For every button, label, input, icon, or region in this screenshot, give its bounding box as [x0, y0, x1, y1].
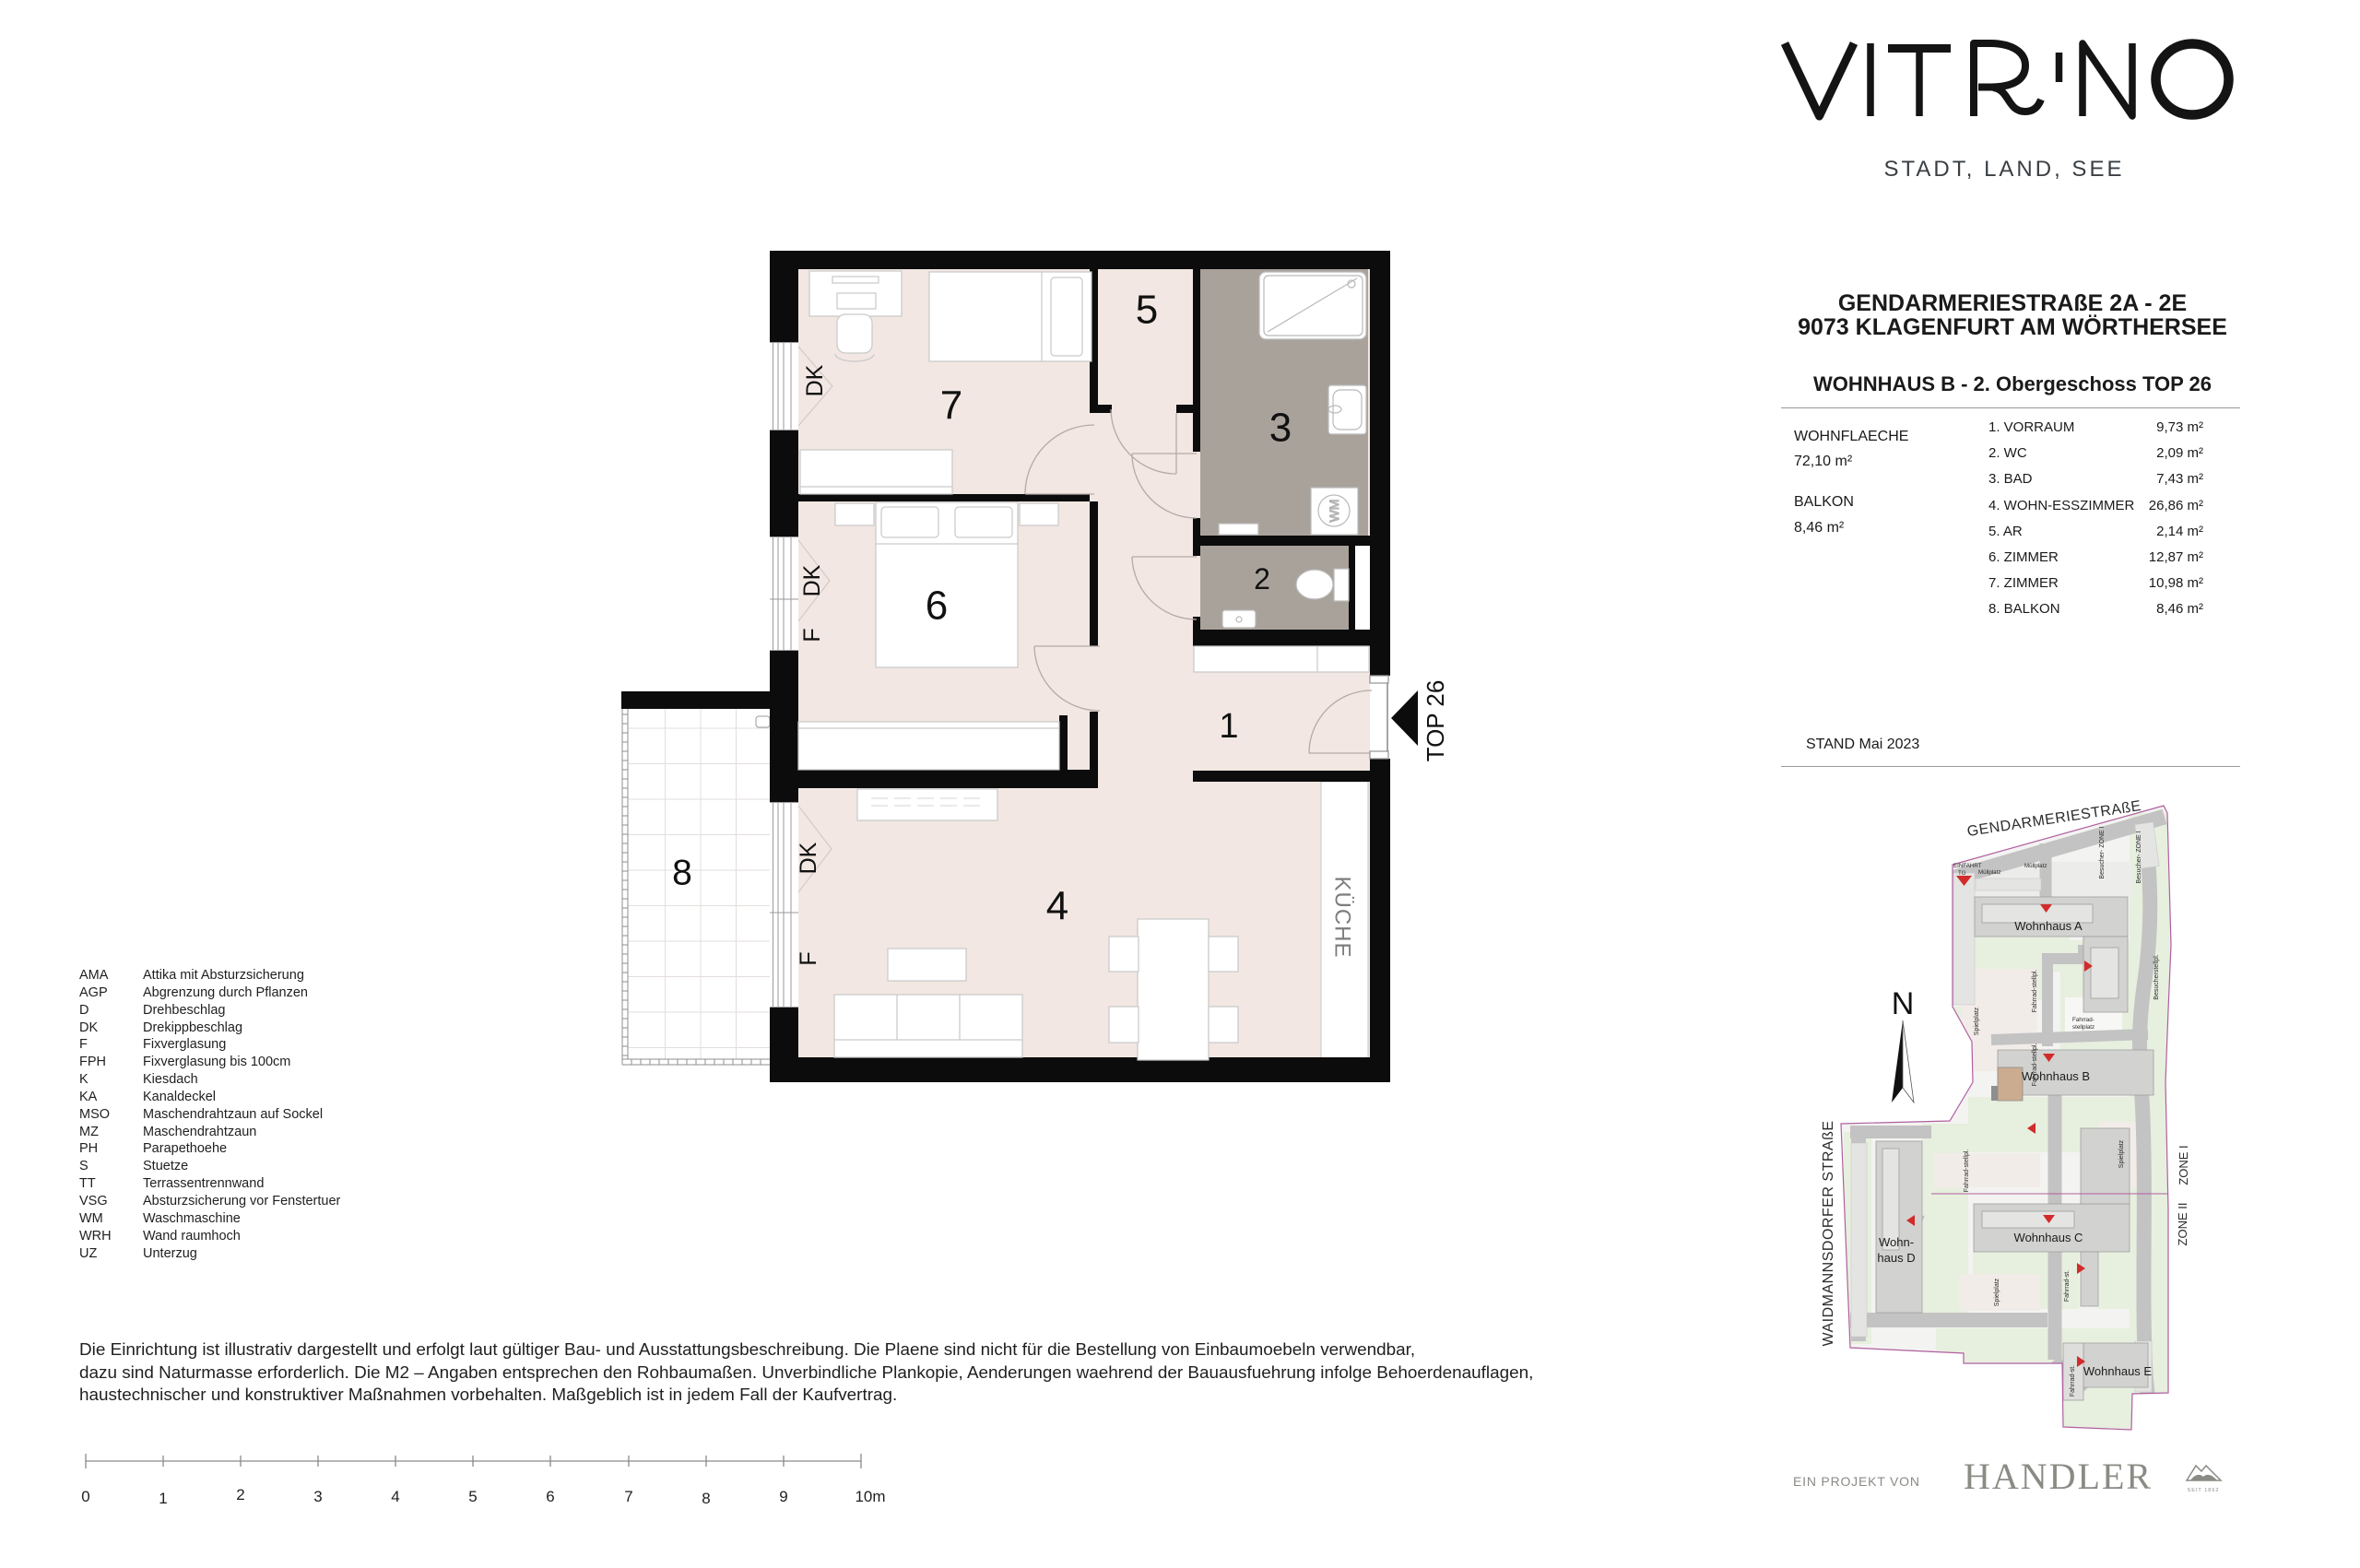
- svg-text:Fahrrad-stellpl.: Fahrrad-stellpl.: [1964, 1149, 1970, 1193]
- svg-text:DK: DK: [802, 364, 828, 396]
- svg-text:5: 5: [468, 1488, 477, 1505]
- svg-text:6: 6: [546, 1488, 554, 1505]
- svg-text:Fahrrad-st.: Fahrrad-st.: [2070, 1365, 2076, 1397]
- svg-text:8: 8: [702, 1490, 710, 1507]
- svg-text:Wohnhaus C: Wohnhaus C: [2014, 1231, 2083, 1244]
- svg-text:4: 4: [391, 1488, 399, 1505]
- svg-text:WM: WM: [1327, 500, 1341, 523]
- svg-text:Spielplatz: Spielplatz: [1974, 1007, 1980, 1035]
- svg-text:Wohnhaus E: Wohnhaus E: [2083, 1364, 2153, 1378]
- svg-text:7: 7: [624, 1488, 632, 1505]
- svg-text:N: N: [1892, 986, 1915, 1021]
- svg-text:F: F: [796, 951, 821, 965]
- svg-text:Fahrrad-st.: Fahrrad-st.: [2064, 1270, 2071, 1302]
- svg-text:3: 3: [313, 1488, 322, 1505]
- svg-text:DK: DK: [796, 842, 821, 874]
- svg-text:9: 9: [779, 1488, 787, 1505]
- svg-text:SEIT 1862: SEIT 1862: [2188, 1488, 2220, 1493]
- svg-text:1: 1: [159, 1490, 167, 1507]
- svg-text:Besucher- ZONE I: Besucher- ZONE I: [2099, 826, 2106, 878]
- svg-text:TG: TG: [1958, 870, 1966, 877]
- svg-text:Spielplatz: Spielplatz: [2118, 1139, 2125, 1168]
- svg-text:Wohn-: Wohn-: [1879, 1235, 1914, 1249]
- svg-text:stellplatz: stellplatz: [2072, 1024, 2094, 1031]
- svg-text:haus D: haus D: [1877, 1251, 1915, 1265]
- svg-text:Fahrrad-stellpl.: Fahrrad-stellpl.: [2032, 1043, 2038, 1087]
- svg-text:5: 5: [1136, 288, 1158, 333]
- svg-text:Besucherstellpl.: Besucherstellpl.: [2153, 954, 2160, 999]
- svg-text:2: 2: [1254, 562, 1270, 595]
- svg-text:0: 0: [81, 1488, 89, 1505]
- svg-text:6: 6: [926, 584, 948, 629]
- svg-text:10m: 10m: [855, 1488, 885, 1505]
- svg-text:KÜCHE: KÜCHE: [1330, 876, 1355, 958]
- svg-text:Müllplatz: Müllplatz: [1978, 869, 2000, 876]
- svg-text:4: 4: [1046, 884, 1068, 929]
- svg-text:Fahrrad-stellpl.: Fahrrad-stellpl.: [2032, 970, 2038, 1013]
- svg-text:ZONE II: ZONE II: [2176, 1203, 2189, 1246]
- svg-text:Wohnhaus A: Wohnhaus A: [2014, 919, 2083, 933]
- svg-text:Fahrrad-: Fahrrad-: [2072, 1017, 2094, 1023]
- svg-text:1: 1: [1219, 707, 1238, 746]
- svg-text:Müllplatz: Müllplatz: [2024, 863, 2047, 869]
- svg-text:TOP 26: TOP 26: [1422, 680, 1449, 762]
- svg-text:2: 2: [236, 1486, 244, 1503]
- svg-text:3: 3: [1269, 406, 1292, 451]
- svg-text:WAIDMANNSDORFER STRAßE: WAIDMANNSDORFER STRAßE: [1821, 1120, 1836, 1346]
- svg-text:F: F: [799, 628, 825, 642]
- svg-text:8: 8: [672, 854, 692, 893]
- svg-text:EINFAHRT: EINFAHRT: [1953, 863, 1982, 869]
- svg-text:7: 7: [940, 383, 962, 429]
- svg-text:DK: DK: [799, 564, 825, 596]
- svg-text:Besucher- ZONE I: Besucher- ZONE I: [2136, 831, 2142, 883]
- svg-text:Spielplatz: Spielplatz: [1994, 1278, 2000, 1306]
- svg-text:ZONE I: ZONE I: [2177, 1145, 2190, 1185]
